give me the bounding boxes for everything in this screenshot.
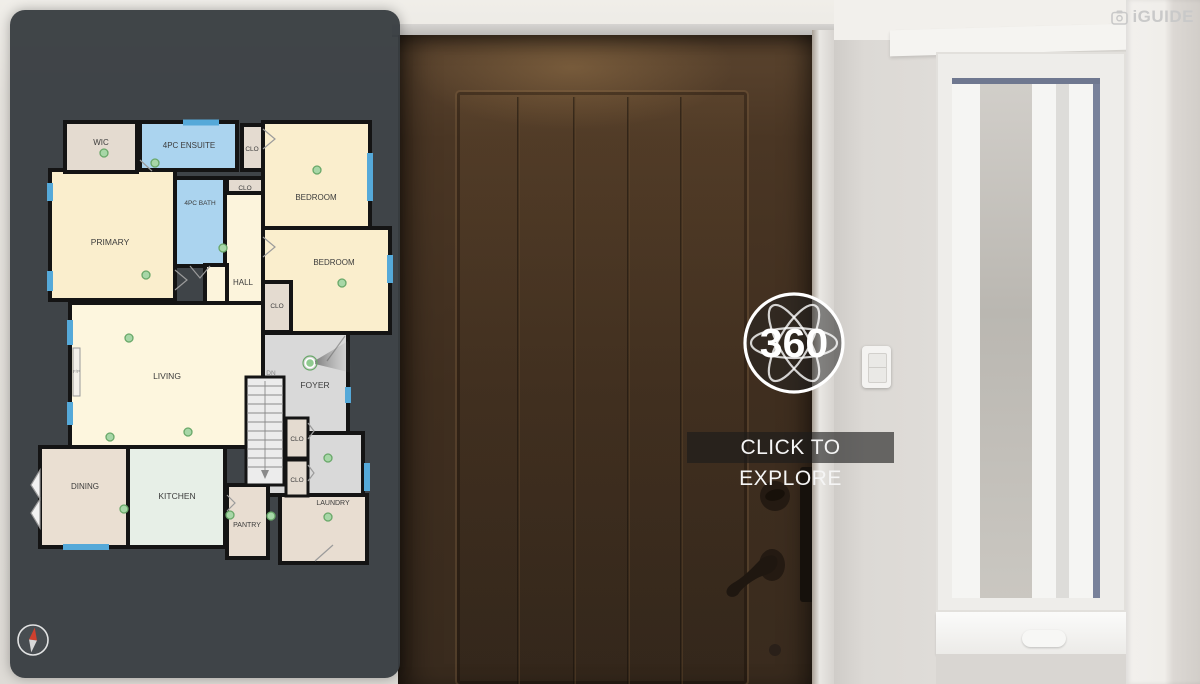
compass[interactable] (16, 623, 50, 657)
door-groove (680, 97, 683, 684)
door-groove (627, 97, 630, 684)
svg-text:DN: DN (266, 370, 276, 377)
camera-hotspot-living-2[interactable] (106, 433, 114, 441)
wall (936, 654, 1126, 684)
door-groove (573, 97, 576, 684)
switch-rocker (868, 353, 887, 383)
wall (834, 0, 936, 684)
window-crank (1022, 630, 1066, 647)
svg-text:LIVING: LIVING (153, 371, 181, 381)
floorplan-panel: F/P (10, 10, 400, 678)
camera-hotspot-pantry-1[interactable] (226, 511, 234, 519)
camera-hotspot-primary[interactable] (142, 271, 150, 279)
door-top-trim (392, 24, 838, 35)
wall (1126, 0, 1200, 684)
camera-hotspot-ensuite[interactable] (151, 159, 159, 167)
window-mullion (1056, 78, 1069, 598)
svg-text:FOYER: FOYER (300, 380, 329, 390)
iguide-camera-icon (1111, 10, 1128, 25)
svg-text:CLO: CLO (238, 185, 251, 192)
door-panel (457, 92, 747, 684)
camera-hotspot-bedroom-1[interactable] (313, 166, 321, 174)
window-frame-edge (952, 78, 1100, 84)
svg-text:4PC ENSUITE: 4PC ENSUITE (163, 141, 215, 150)
rooms (40, 122, 390, 563)
svg-text:WIC: WIC (93, 138, 109, 147)
exterior-column (980, 78, 1032, 598)
click-to-explore-button[interactable]: CLICK TO EXPLORE (687, 432, 894, 463)
camera-hotspot-bath[interactable] (219, 244, 227, 252)
svg-text:BEDROOM: BEDROOM (295, 193, 337, 202)
svg-text:HALL: HALL (233, 278, 254, 287)
camera-hotspot-living-1[interactable] (125, 334, 133, 342)
light-switch (862, 346, 891, 388)
window-glass (952, 78, 1100, 598)
svg-text:CLO: CLO (270, 303, 283, 310)
camera-hotspot-laundry[interactable] (324, 513, 332, 521)
svg-text:LAUNDRY: LAUNDRY (316, 500, 350, 507)
camera-hotspot-pantry-2[interactable] (267, 512, 275, 520)
iguide-logo: iGUIDE (1111, 7, 1194, 27)
svg-text:CLO: CLO (290, 477, 303, 484)
floorplan[interactable]: F/P (30, 105, 400, 570)
svg-text:F/P: F/P (73, 369, 80, 374)
svg-text:CLO: CLO (245, 146, 258, 153)
fireplace: F/P (73, 348, 80, 396)
svg-text:DINING: DINING (71, 482, 99, 491)
camera-hotspot-hall-closet[interactable] (324, 454, 332, 462)
badge-360-label: 360 (760, 320, 828, 366)
iguide-logo-text: iGUIDE (1132, 7, 1194, 27)
svg-text:4PC BATH: 4PC BATH (184, 200, 216, 207)
svg-text:BEDROOM: BEDROOM (313, 258, 355, 267)
svg-text:CLO: CLO (290, 436, 303, 443)
badge-360[interactable]: 360 (739, 288, 849, 398)
camera-hotspot-dining[interactable] (120, 505, 128, 513)
svg-text:PRIMARY: PRIMARY (91, 237, 130, 247)
camera-hotspot-wic[interactable] (100, 149, 108, 157)
svg-text:PANTRY: PANTRY (233, 522, 261, 529)
window-frame-edge (1093, 78, 1100, 598)
stairs (246, 377, 284, 485)
camera-hotspot-bedroom-2[interactable] (338, 279, 346, 287)
camera-hotspot-foyer-active[interactable] (303, 356, 317, 370)
sidelight-window (936, 52, 1126, 612)
camera-hotspot-living-3[interactable] (184, 428, 192, 436)
door-groove (517, 97, 520, 684)
svg-text:KITCHEN: KITCHEN (158, 491, 195, 501)
